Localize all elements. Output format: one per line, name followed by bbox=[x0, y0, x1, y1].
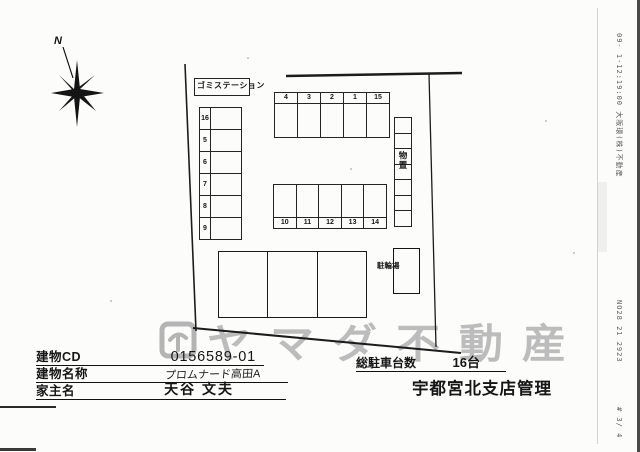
building-cd-value: 0156589-01 bbox=[171, 349, 256, 365]
stall-number: 5 bbox=[200, 130, 211, 151]
building-cell bbox=[318, 252, 366, 317]
bicycle-parking-box bbox=[393, 248, 420, 294]
compass-north-label: N bbox=[54, 35, 63, 47]
field-owner-name: 家主名 天谷 文夫 bbox=[36, 384, 286, 400]
parking-stall: 10 bbox=[273, 184, 297, 229]
stall-number: 2 bbox=[321, 93, 343, 104]
stall-number: 15 bbox=[367, 93, 389, 104]
scan-noise bbox=[545, 120, 547, 122]
stall-number: 6 bbox=[200, 152, 211, 173]
stall-number: 3 bbox=[298, 93, 320, 104]
parking-stall: 13 bbox=[342, 184, 365, 229]
stall-number: 16 bbox=[200, 108, 211, 129]
parking-stall: 12 bbox=[319, 184, 342, 229]
parking-stall: 11 bbox=[297, 184, 320, 229]
field-total-parking: 総駐車台数 16台 bbox=[356, 355, 506, 372]
storage-label: 物置 bbox=[396, 151, 410, 191]
building-cell bbox=[219, 252, 268, 317]
parking-stall: 9 bbox=[200, 218, 241, 239]
scan-stub-line bbox=[0, 406, 56, 408]
stall-column-left: 16 5 6 7 8 9 bbox=[199, 107, 242, 240]
parking-stall: 2 bbox=[321, 92, 344, 138]
stall-number: 13 bbox=[342, 217, 364, 228]
bicycle-parking-label: 駐輪場 bbox=[377, 260, 400, 271]
stall-number: 14 bbox=[364, 217, 386, 228]
trash-station-label: ゴミステーション bbox=[197, 80, 265, 91]
stall-number: 4 bbox=[275, 93, 297, 104]
owner-name-label: 家主名 bbox=[36, 380, 75, 399]
parking-stall: 15 bbox=[367, 92, 390, 138]
stall-number: 7 bbox=[200, 174, 211, 195]
scan-noise bbox=[110, 300, 112, 302]
stall-number: 12 bbox=[319, 217, 341, 228]
parking-stall: 8 bbox=[200, 196, 241, 218]
scan-noise bbox=[573, 252, 575, 254]
building-footprint bbox=[218, 251, 367, 318]
managing-branch-label: 宇都宮北支店管理 bbox=[412, 375, 552, 399]
parking-stall: 7 bbox=[200, 174, 241, 196]
scan-corner-mark bbox=[0, 448, 36, 451]
parking-stall: 1 bbox=[344, 92, 367, 138]
fax-code-text: NO28 21 2923 bbox=[615, 300, 623, 363]
compass-rose: N bbox=[51, 35, 104, 127]
building-cell bbox=[268, 252, 317, 317]
parking-stall: 4 bbox=[274, 92, 298, 138]
total-parking-label: 総駐車台数 bbox=[356, 354, 416, 371]
parking-stall: 16 bbox=[200, 108, 241, 130]
stall-row-middle: 10 11 12 13 14 bbox=[273, 184, 387, 229]
parking-stall: 5 bbox=[200, 130, 241, 152]
parking-stall: 14 bbox=[364, 184, 387, 229]
stall-number: 11 bbox=[297, 217, 319, 228]
stall-number: 9 bbox=[200, 218, 211, 239]
stall-row-top: 4 3 2 1 15 bbox=[274, 92, 390, 138]
fax-page-number: # 3/ 4 bbox=[615, 407, 623, 438]
fax-header-text: 09- 1-12:19:00 大阪環(株)不動産 bbox=[614, 33, 624, 178]
building-info-fields: 建物CD 0156589-01 建物名称 プロムナード高田A 家主名 天谷 文夫 bbox=[36, 350, 288, 401]
parking-stall: 6 bbox=[200, 152, 241, 174]
stall-number: 10 bbox=[274, 217, 296, 228]
scan-smudge bbox=[598, 182, 607, 252]
scan-noise bbox=[350, 168, 352, 170]
stall-number: 1 bbox=[344, 93, 366, 104]
building-name-value: プロムナード高田A bbox=[164, 365, 261, 383]
stall-number: 8 bbox=[200, 196, 211, 217]
total-parking-value: 16台 bbox=[453, 352, 480, 371]
parking-stall: 3 bbox=[298, 92, 321, 138]
scan-noise bbox=[247, 57, 249, 59]
